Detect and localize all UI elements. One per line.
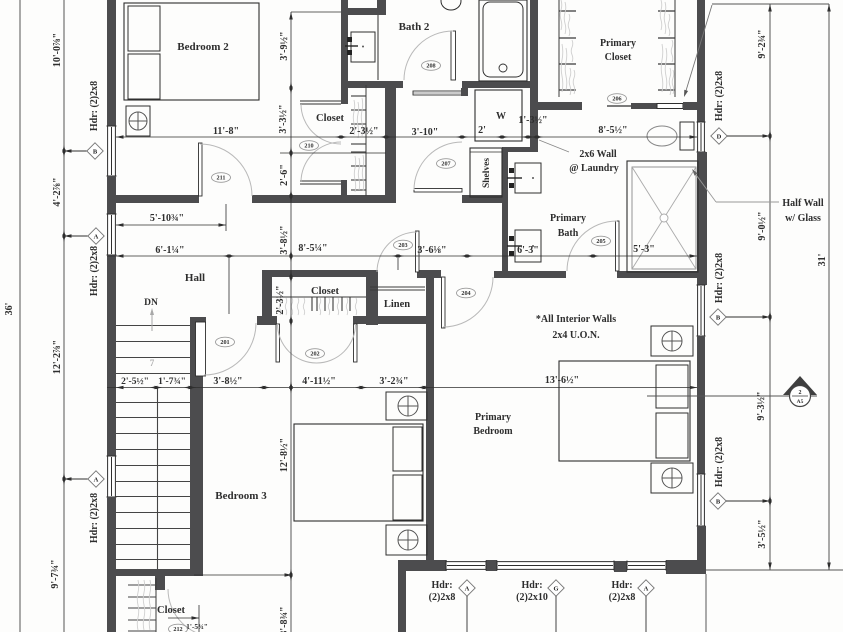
svg-text:Closet: Closet bbox=[157, 605, 185, 616]
svg-text:Closet: Closet bbox=[311, 286, 339, 297]
svg-text:2x4 U.O.N.: 2x4 U.O.N. bbox=[552, 330, 600, 341]
svg-text:201: 201 bbox=[220, 339, 229, 346]
svg-text:12'-8½": 12'-8½" bbox=[279, 438, 290, 472]
svg-text:2'-3½": 2'-3½" bbox=[349, 126, 378, 137]
svg-text:3'-2¾": 3'-2¾" bbox=[379, 376, 408, 387]
svg-text:(2)2x8: (2)2x8 bbox=[429, 592, 456, 603]
svg-text:D: D bbox=[717, 133, 722, 140]
svg-text:Bath 2: Bath 2 bbox=[399, 21, 430, 33]
svg-text:202: 202 bbox=[310, 351, 319, 358]
svg-text:10'-0⅞": 10'-0⅞" bbox=[52, 33, 63, 67]
svg-text:31': 31' bbox=[817, 253, 828, 266]
svg-text:2': 2' bbox=[478, 125, 486, 136]
svg-text:Bath: Bath bbox=[558, 228, 579, 239]
svg-text:2'-3½": 2'-3½" bbox=[275, 285, 286, 314]
svg-text:208: 208 bbox=[426, 63, 435, 70]
svg-text:Closet: Closet bbox=[605, 52, 632, 63]
svg-text:211: 211 bbox=[217, 175, 226, 182]
svg-text:Closet: Closet bbox=[316, 113, 344, 124]
svg-text:2x6 Wall: 2x6 Wall bbox=[579, 149, 617, 160]
svg-text:A: A bbox=[94, 476, 99, 483]
svg-text:13'-6½": 13'-6½" bbox=[545, 375, 579, 386]
svg-text:Half Wall: Half Wall bbox=[782, 198, 823, 209]
svg-text:2: 2 bbox=[799, 390, 802, 396]
svg-text:Hdr: (2)2x8: Hdr: (2)2x8 bbox=[89, 81, 100, 131]
svg-text:Hdr: (2)2x8: Hdr: (2)2x8 bbox=[89, 246, 100, 296]
svg-text:G: G bbox=[553, 585, 558, 592]
svg-text:205: 205 bbox=[596, 238, 605, 245]
svg-text:Primary: Primary bbox=[475, 412, 511, 423]
svg-text:*All Interior Walls: *All Interior Walls bbox=[536, 314, 616, 325]
svg-text:3'-8½": 3'-8½" bbox=[279, 225, 290, 254]
svg-text:1'-3½": 1'-3½" bbox=[518, 115, 547, 126]
svg-text:Primary: Primary bbox=[600, 38, 636, 49]
svg-text:3'-6⅛": 3'-6⅛" bbox=[417, 245, 446, 256]
svg-text:Bedroom 3: Bedroom 3 bbox=[215, 490, 267, 502]
svg-text:Primary: Primary bbox=[550, 213, 586, 224]
svg-text:3'-8½": 3'-8½" bbox=[213, 376, 242, 387]
svg-text:4'-2⅞": 4'-2⅞" bbox=[52, 177, 63, 206]
svg-text:(2)2x8: (2)2x8 bbox=[609, 592, 636, 603]
svg-text:W: W bbox=[496, 111, 506, 122]
svg-text:9'-0½": 9'-0½" bbox=[757, 211, 768, 240]
svg-text:1'-7¾": 1'-7¾" bbox=[158, 377, 186, 387]
svg-text:207: 207 bbox=[441, 161, 450, 168]
svg-text:206: 206 bbox=[612, 96, 621, 103]
svg-text:B: B bbox=[716, 314, 721, 321]
svg-text:Bedroom 2: Bedroom 2 bbox=[177, 41, 229, 53]
svg-text:w/ Glass: w/ Glass bbox=[785, 213, 821, 224]
svg-text:@ Laundry: @ Laundry bbox=[569, 163, 619, 174]
svg-text:Hdr: (2)2x8: Hdr: (2)2x8 bbox=[714, 71, 725, 121]
svg-text:11'-8": 11'-8" bbox=[213, 126, 239, 137]
svg-text:204: 204 bbox=[461, 290, 470, 297]
svg-text:3'-3½": 3'-3½" bbox=[278, 104, 289, 133]
svg-text:2'-6": 2'-6" bbox=[279, 164, 290, 186]
svg-text:B: B bbox=[93, 148, 98, 155]
svg-text:12'-2⅞": 12'-2⅞" bbox=[52, 340, 63, 374]
svg-text:8'-5¼": 8'-5¼" bbox=[298, 243, 327, 254]
svg-text:5'-10¾": 5'-10¾" bbox=[150, 213, 184, 224]
svg-text:6'-1¼": 6'-1¼" bbox=[155, 245, 184, 256]
svg-text:Hdr:: Hdr: bbox=[431, 580, 452, 591]
svg-text:3'-5½": 3'-5½" bbox=[757, 519, 768, 548]
svg-text:Hdr: (2)2x8: Hdr: (2)2x8 bbox=[714, 437, 725, 487]
svg-text:7: 7 bbox=[150, 358, 155, 368]
svg-text:212: 212 bbox=[173, 626, 182, 632]
svg-text:36': 36' bbox=[4, 302, 15, 315]
svg-text:9'-2¾": 9'-2¾" bbox=[757, 29, 768, 58]
svg-text:A: A bbox=[644, 585, 649, 592]
svg-text:DN: DN bbox=[144, 298, 158, 308]
svg-text:Bedroom: Bedroom bbox=[473, 426, 513, 437]
svg-text:5'-3": 5'-3" bbox=[633, 244, 655, 255]
svg-text:A: A bbox=[465, 585, 470, 592]
svg-text:4'-11½": 4'-11½" bbox=[302, 376, 336, 387]
svg-text:210: 210 bbox=[304, 143, 313, 150]
svg-text:Linen: Linen bbox=[384, 299, 410, 310]
svg-text:Hdr:: Hdr: bbox=[521, 580, 542, 591]
svg-text:6'-3": 6'-3" bbox=[517, 245, 539, 256]
svg-text:203: 203 bbox=[398, 242, 407, 249]
svg-text:3'-9½": 3'-9½" bbox=[279, 31, 290, 60]
svg-text:Hdr: (2)2x8: Hdr: (2)2x8 bbox=[714, 253, 725, 303]
svg-text:Hall: Hall bbox=[185, 272, 205, 284]
svg-text:2'-5½": 2'-5½" bbox=[121, 377, 149, 387]
svg-text:3'-8¾": 3'-8¾" bbox=[279, 606, 290, 632]
svg-text:Hdr:: Hdr: bbox=[611, 580, 632, 591]
svg-text:B: B bbox=[716, 498, 721, 505]
svg-text:3'-10": 3'-10" bbox=[412, 127, 439, 138]
svg-text:1'-5¾": 1'-5¾" bbox=[186, 622, 208, 631]
svg-text:8'-5½": 8'-5½" bbox=[598, 125, 627, 136]
svg-text:A: A bbox=[94, 233, 99, 240]
svg-text:A5: A5 bbox=[797, 399, 804, 405]
svg-text:Hdr: (2)2x8: Hdr: (2)2x8 bbox=[89, 493, 100, 543]
svg-text:Shelves: Shelves bbox=[482, 158, 492, 188]
svg-text:9'-7¾": 9'-7¾" bbox=[50, 559, 61, 588]
svg-text:(2)2x10: (2)2x10 bbox=[516, 592, 548, 603]
